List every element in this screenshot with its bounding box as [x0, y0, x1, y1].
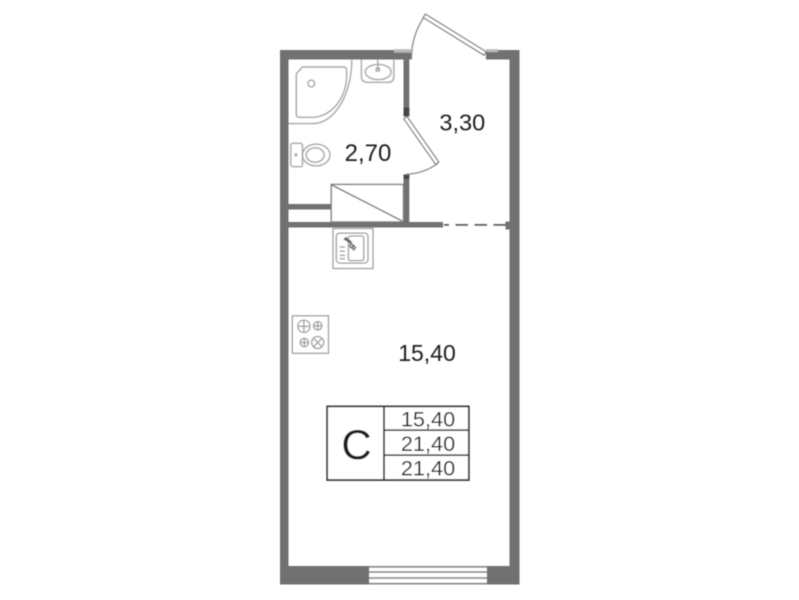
svg-text:21,40: 21,40 — [401, 455, 455, 480]
svg-text:С: С — [341, 421, 371, 468]
svg-text:15,40: 15,40 — [401, 406, 455, 431]
svg-text:15,40: 15,40 — [398, 340, 456, 366]
svg-text:21,40: 21,40 — [401, 431, 455, 456]
svg-text:3,30: 3,30 — [439, 109, 485, 135]
svg-text:2,70: 2,70 — [345, 140, 392, 167]
